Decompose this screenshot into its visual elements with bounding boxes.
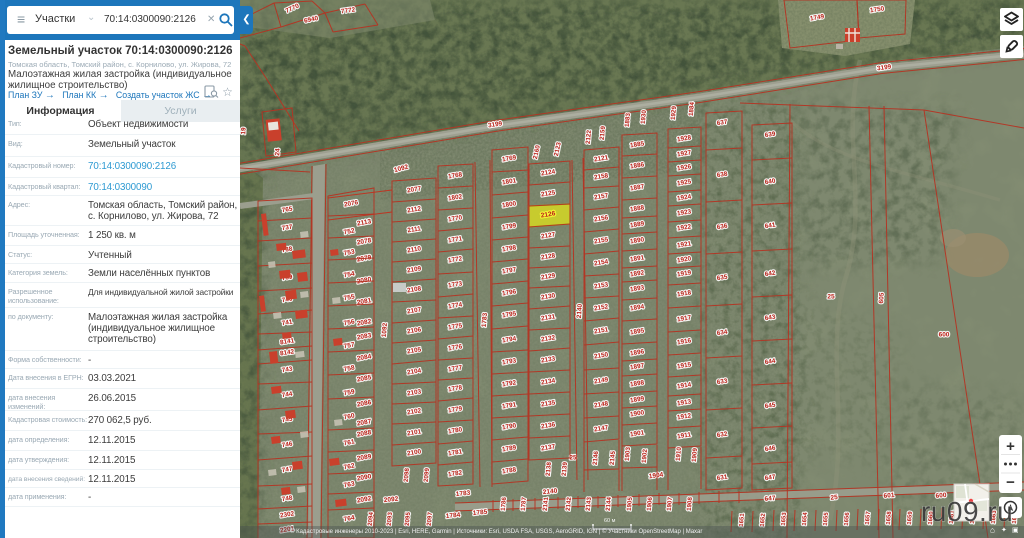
svg-text:1908: 1908 xyxy=(686,496,694,511)
svg-text:1910: 1910 xyxy=(675,446,683,461)
svg-text:19: 19 xyxy=(240,127,248,135)
svg-text:2099: 2099 xyxy=(423,467,431,482)
svg-text:+: + xyxy=(1006,438,1015,455)
svg-text:1786: 1786 xyxy=(500,496,508,511)
svg-text:2145: 2145 xyxy=(609,450,617,465)
svg-text:1655: 1655 xyxy=(823,512,830,526)
svg-text:2138: 2138 xyxy=(545,461,553,476)
svg-text:60 м: 60 м xyxy=(604,518,616,524)
svg-text:2141: 2141 xyxy=(542,496,550,511)
svg-text:1658: 1658 xyxy=(886,511,893,525)
svg-text:2144: 2144 xyxy=(605,496,613,511)
svg-text:1906: 1906 xyxy=(646,496,654,511)
svg-text:1783: 1783 xyxy=(481,312,489,327)
svg-text:1930: 1930 xyxy=(640,109,648,124)
svg-text:1884: 1884 xyxy=(688,101,696,116)
svg-text:601: 601 xyxy=(883,492,895,500)
svg-text:1657: 1657 xyxy=(865,511,872,525)
svg-text:2095: 2095 xyxy=(404,511,412,526)
svg-text:2142: 2142 xyxy=(565,496,573,511)
svg-text:1907: 1907 xyxy=(666,496,674,511)
svg-text:600: 600 xyxy=(939,331,950,338)
svg-text:2122: 2122 xyxy=(585,129,593,144)
svg-text:25: 25 xyxy=(570,455,577,461)
svg-text:ru09.ru: ru09.ru xyxy=(921,496,1013,527)
svg-text:© Кадастровые инженеры 2010-20: © Кадастровые инженеры 2010-2023 | Esri,… xyxy=(290,528,702,535)
svg-text:2146: 2146 xyxy=(592,450,600,465)
svg-text:1909: 1909 xyxy=(691,447,699,462)
svg-text:1902: 1902 xyxy=(641,448,649,463)
svg-text:1905: 1905 xyxy=(626,496,634,511)
svg-text:1929: 1929 xyxy=(670,105,678,120)
svg-text:647: 647 xyxy=(764,495,776,503)
svg-text:1883: 1883 xyxy=(624,112,632,127)
svg-text:605: 605 xyxy=(878,292,886,304)
svg-text:2159: 2159 xyxy=(599,125,607,140)
svg-text:1659: 1659 xyxy=(907,511,914,525)
svg-text:25: 25 xyxy=(827,293,835,300)
svg-text:1652: 1652 xyxy=(760,513,767,527)
svg-text:1654: 1654 xyxy=(802,512,809,526)
svg-text:1787: 1787 xyxy=(520,496,528,511)
svg-text:−: − xyxy=(1006,474,1015,491)
svg-text:1653: 1653 xyxy=(781,512,788,526)
svg-text:2143: 2143 xyxy=(585,496,593,511)
svg-text:1656: 1656 xyxy=(844,512,851,526)
svg-text:2097: 2097 xyxy=(426,511,434,526)
svg-text:2098: 2098 xyxy=(403,467,411,482)
svg-text:1651: 1651 xyxy=(739,513,746,527)
svg-text:▣: ▣ xyxy=(1012,527,1019,534)
svg-text:2093: 2093 xyxy=(386,511,394,526)
svg-text:2140: 2140 xyxy=(576,303,584,318)
svg-text:1092: 1092 xyxy=(381,322,389,337)
svg-text:25: 25 xyxy=(830,494,838,502)
svg-text:2094: 2094 xyxy=(367,511,375,526)
svg-text:24: 24 xyxy=(274,148,282,156)
svg-text:1903: 1903 xyxy=(624,446,632,461)
svg-text:2139: 2139 xyxy=(561,461,569,476)
svg-text:✦: ✦ xyxy=(1001,526,1007,534)
